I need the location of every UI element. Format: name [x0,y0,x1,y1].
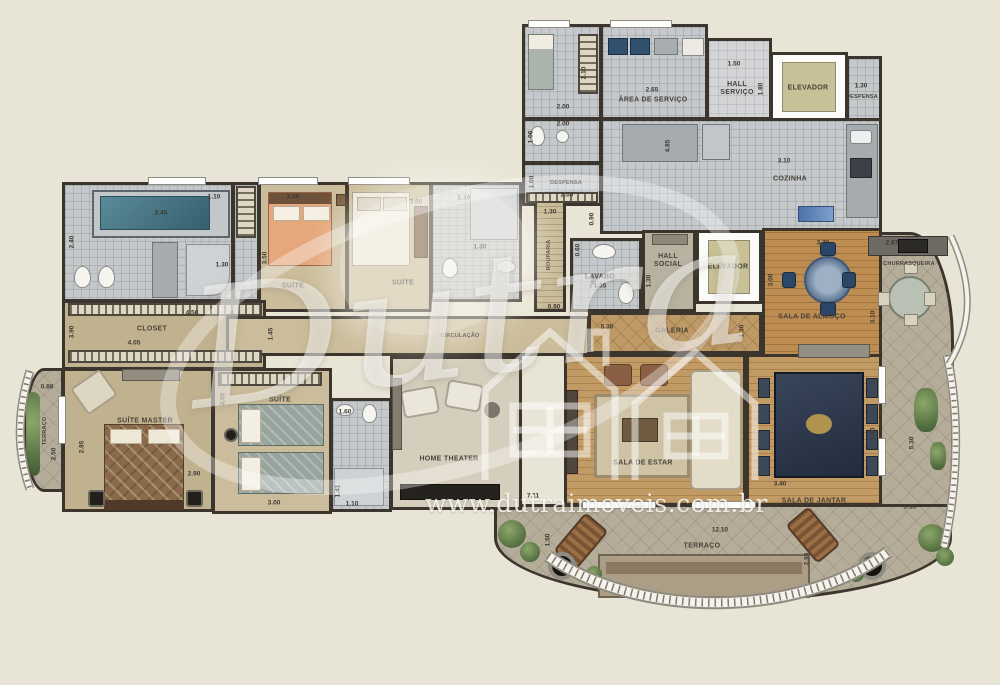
label-suite-2: SUÍTE [392,280,414,287]
label-hall-social: HALL SOCIAL [646,253,690,269]
dim-label: 1.30 [474,244,487,251]
dim-label: 4.50 [186,310,199,317]
fridge [702,124,730,160]
label-suite-master: SUÍTE MASTER [117,418,173,425]
dim-label: 3.00 [410,199,423,206]
dim-label: 1.30 [739,325,746,338]
dim-label: 1.30 [855,83,868,90]
dim-label: 0.60 [575,244,582,257]
dim-label: 2.00 [557,104,570,111]
dim-label: 3.70 [817,240,830,247]
label-elevador-servico: ELEVADOR [788,85,829,92]
chair [842,272,856,288]
label-lavabo: LAVABO [585,274,615,281]
dim-label: 0.88 [41,384,54,391]
terrace-door [58,396,66,444]
dim-label: 1.10 [458,195,471,202]
vanity [152,242,178,298]
bidet [98,266,115,288]
dim-label: 2.85 [79,441,86,454]
suite2-bed [352,192,410,266]
pillow [148,429,180,444]
dim-label: 2.67 [886,240,899,247]
suite1-bed [268,192,332,266]
plant [930,442,946,470]
label-home-theater: HOME THEATER [419,456,478,463]
label-churrasqueira: CHURRASQUEIRA [883,261,935,267]
twin-bed [238,404,324,446]
chair [866,404,878,424]
dim-label: 0.90 [589,213,596,226]
sink [556,130,569,143]
dim-label: 3.00 [287,194,300,201]
column [548,552,576,580]
chair [904,314,918,326]
dim-label: 2.90 [188,471,201,478]
dim-label: 1.50 [545,534,552,547]
shower [470,188,518,240]
dim-label: 2.45 [155,210,168,217]
plant [848,566,864,582]
cooktop [798,206,834,222]
label-circulacao: CIRCULAÇÃO [441,333,480,339]
floor-plan: ÁREA DE SERVIÇO HALL SERVIÇO ELEVADOR EL… [0,0,1000,685]
chair [758,456,770,476]
sideboard [798,344,870,358]
label-despensa-left: DESPENSA [550,180,582,186]
dim-label: 2.65 [646,87,659,94]
dim-label: 1.30 [544,209,557,216]
kitchen-sink [850,130,872,144]
master-bed [104,424,184,510]
terrace-bench [598,554,810,598]
label-despensa-tr: DESPENSA [846,94,878,100]
pillow [241,457,261,491]
kitchen-island [622,124,698,162]
dim-label: 1.30 [646,275,653,288]
chair [866,378,878,398]
dim-label: 5.30 [601,324,614,331]
dim-label: 4.05 [128,340,141,347]
chair [924,292,936,306]
label-sala-jantar: SALA DE JANTAR [782,498,846,505]
dim-label: 1.50 [728,61,741,68]
label-area-servico: ÁREA DE SERVIÇO [618,97,687,104]
label-hall-servico: HALL SERVIÇO [715,81,759,97]
pillow [357,197,381,211]
sofa [690,370,742,490]
chair [758,430,770,450]
dim-label: 1.13 [904,504,917,511]
dim-label: 1.10 [346,501,359,508]
plant [914,388,938,432]
label-sala-estar: SALA DE ESTAR [613,460,673,467]
window [348,177,410,185]
dim-label: 0.90 [548,304,561,311]
dim-label: 3.00 [268,500,281,507]
nightstand [224,428,238,442]
dim-label: 3.10 [778,158,791,165]
dim-label: 1.35 [594,283,607,290]
recliner [444,379,484,413]
oven [850,158,872,178]
armchair [640,364,668,386]
dim-label: 1.40 [870,428,877,441]
label-terraco-left: TERRAÇO [42,417,48,446]
twins-wardrobe [218,372,322,386]
window [878,366,886,404]
room-despensa-top-right [846,56,882,126]
armchair [604,364,632,386]
label-rouparia: ROUPARIA [546,240,552,271]
plant [936,548,954,566]
chair [758,378,770,398]
lavabo-toilet [618,282,634,304]
plant [498,520,526,548]
dim-label: 3.40 [774,481,787,488]
laundry-tank [682,38,704,56]
toilet [362,404,377,423]
dim-label: 1.00 [529,176,536,189]
plant [586,566,602,582]
mini-closet-shelves [236,186,256,238]
shower [334,468,384,506]
shower [186,244,230,296]
label-elevador-social: ELEVADOR [708,264,749,271]
dim-label: 3.50 [262,252,269,265]
dim-label: 3.05 [220,393,227,406]
dim-label: 2.93 [804,553,811,566]
speaker [186,490,203,507]
chair [878,292,890,306]
pillow [303,206,330,221]
bench [122,369,180,381]
sliding-door [582,501,656,509]
media-cabinet [392,378,402,450]
dim-label: 1.80 [758,83,765,96]
chair [866,456,878,476]
washer [630,38,650,55]
chair [782,272,796,288]
lavabo-sink [592,244,616,259]
closet-wardrobe [68,350,262,363]
label-cozinha: COZINHA [773,176,807,183]
window [878,438,886,476]
dim-label: 2.00 [557,121,570,128]
laundry-sink [654,38,678,55]
washer [608,38,628,55]
projection-screen [400,484,500,500]
dresser [414,206,428,258]
dim-label: 1.41 [335,485,342,498]
window [148,177,206,185]
dim-label: 1.10 [208,194,221,201]
pillow [241,409,261,443]
dim-label: 5.30 [909,437,916,450]
label-suite-twins: SUÍTE [269,397,291,404]
dim-label: 2.00 [561,192,574,199]
dim-label: 2.10 [581,67,588,80]
side-table [484,402,500,418]
dim-label: 2.50 [51,448,58,461]
pillow [110,429,142,444]
dim-label: 1.60 [339,409,352,416]
bench-top [606,562,802,574]
closet-wardrobe [68,303,262,316]
console-table [652,234,688,245]
maid-wardrobe [578,34,598,94]
speaker [88,490,105,507]
coffee-table [622,418,658,442]
headboard [105,500,183,510]
pillow [383,197,407,211]
room-hall-servico [706,38,772,120]
window [528,20,570,28]
window [258,177,318,185]
dim-label: 3.90 [69,326,76,339]
dim-label: 3.10 [870,311,877,324]
sink [496,260,516,273]
dim-label: 1.06 [528,131,535,144]
room-circulacao [226,316,590,356]
centerpiece [806,414,832,434]
sliding-door [692,501,756,509]
toilet [442,258,458,278]
plant [26,392,40,476]
toilet [74,266,91,288]
dim-label: 2.40 [69,236,76,249]
dim-label: 7.11 [527,493,539,500]
maid-bed [528,34,554,90]
plant [520,542,540,562]
label-closet: CLOSET [137,326,167,333]
label-sala-almoco: SALA DE ALMOÇO [778,314,845,321]
dim-label: 1.45 [268,328,275,341]
grill [898,239,928,253]
nightstand [336,194,346,206]
dim-label: 4.85 [665,140,672,153]
headboard [269,193,331,204]
label-terraco-bottom: TERRAÇO [684,543,721,550]
window [610,20,672,28]
chair [758,404,770,424]
dim-label: 3.00 [768,274,775,287]
dim-label: 1.30 [216,262,229,269]
pillow [273,206,300,221]
dim-label: 12.10 [712,527,728,534]
label-suite-1: SUÍTE [282,283,304,290]
tv-panel [566,390,578,474]
label-galeria: GALERIA [655,328,689,335]
twin-bed [238,452,324,494]
